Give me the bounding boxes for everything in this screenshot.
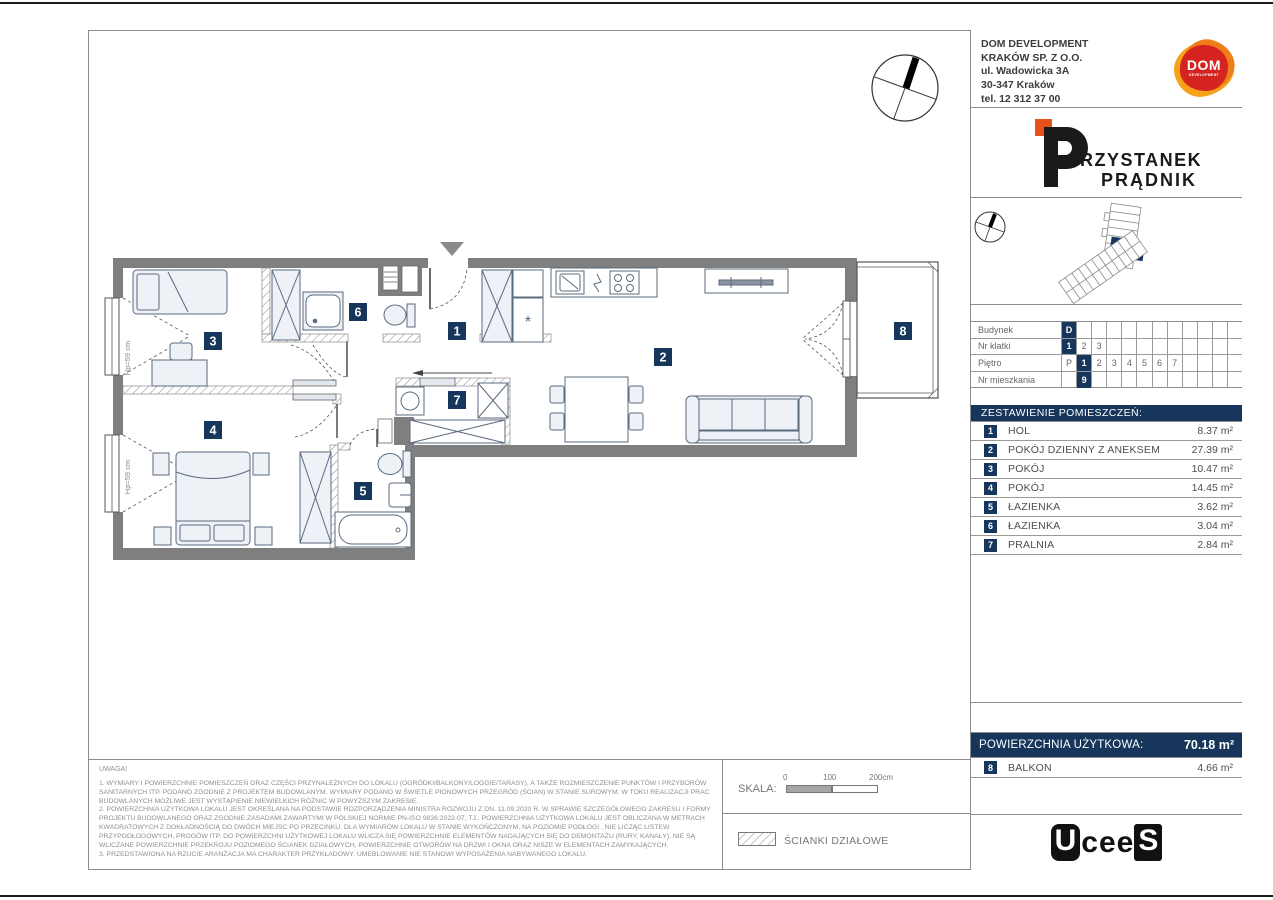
- location-cell: [1182, 322, 1197, 338]
- location-cell: [1076, 322, 1091, 338]
- location-cell: [1106, 322, 1121, 338]
- location-cell: 9: [1076, 372, 1091, 389]
- location-cell: 1: [1076, 355, 1091, 371]
- room-row-7: 7 PRALNIA 2.84 m²: [971, 536, 1242, 555]
- partition-legend-label: ŚCIANKI DZIAŁOWE: [784, 835, 889, 847]
- location-row-label: Nr klatki: [971, 339, 1061, 355]
- title-block: DOM DEVELOPMENT KRAKÓW SP. Z O.O. ul. Wa…: [970, 30, 1242, 870]
- page-top-rule: [0, 2, 1273, 4]
- company-phone: tel. 12 312 37 00: [981, 93, 1088, 107]
- notes-box: UWAGA! 1. WYMIARY I POWIERZCHNIE POMIESZ…: [88, 759, 723, 870]
- location-cell: P: [1061, 355, 1076, 371]
- title-block-empty2: [971, 778, 1242, 815]
- location-cell: [1152, 339, 1167, 355]
- location-cell: [1197, 372, 1212, 389]
- location-cell: D: [1061, 322, 1076, 338]
- location-row-label: Nr mieszkania: [971, 372, 1061, 389]
- location-table: Budynek D Nr klatki 1 2 3: [971, 322, 1242, 388]
- room-row-3: 3 POKÓJ 10.47 m²: [971, 460, 1242, 479]
- logo-word: DOM: [1172, 57, 1236, 73]
- room-name: POKÓJ: [1008, 482, 1045, 494]
- title-block-spacer: [971, 305, 1242, 322]
- ucees-letter-e: e: [1099, 828, 1116, 858]
- location-row-label: Piętro: [971, 355, 1061, 371]
- project-name-line2: PRĄDNIK: [1101, 170, 1197, 190]
- location-cell: [1182, 355, 1197, 371]
- location-cell: [1121, 339, 1136, 355]
- location-cell: [1106, 372, 1121, 389]
- room-area: 10.47 m²: [1192, 463, 1242, 475]
- location-cell: [1136, 322, 1151, 338]
- notes-title: UWAGA!: [99, 766, 712, 773]
- scale-label: SKALA:: [738, 783, 777, 795]
- room-area: 2.84 m²: [1197, 539, 1242, 551]
- scale-tick-0: 0: [783, 773, 787, 782]
- location-cell: [1212, 355, 1227, 371]
- room-name: HOL: [1008, 425, 1030, 437]
- note-item-2: 2. POWIERZCHNIA UŻYTKOWA LOKALU JEST OKR…: [99, 806, 712, 850]
- room-area: 4.66 m²: [1197, 762, 1242, 774]
- przystanek-pradnik-logo: RZYSTANEK PRĄDNIK: [1023, 111, 1223, 195]
- ucees-letter-u: U: [1051, 824, 1081, 861]
- location-cell: [1167, 322, 1182, 338]
- site-plan-section: [971, 198, 1242, 305]
- location-cell: [1121, 322, 1136, 338]
- usable-area-value: 70.18 m²: [1184, 738, 1242, 752]
- location-cell: [1212, 372, 1227, 389]
- company-name-line2: KRAKÓW SP. Z O.O.: [981, 52, 1088, 66]
- location-cell: [1136, 339, 1151, 355]
- project-name-line1: RZYSTANEK: [1080, 150, 1202, 170]
- room-row-4: 4 POKÓJ 14.45 m²: [971, 479, 1242, 498]
- note-item-3: 3. PRZEDSTAWIONA NA RZUCIE ARANŻACJA MA …: [99, 851, 712, 860]
- location-cell: 2: [1091, 355, 1106, 371]
- location-cell: 5: [1136, 355, 1151, 371]
- rooms-table-header: ZESTAWIENIE POMIESZCZEŃ:: [971, 405, 1242, 422]
- location-cell: 3: [1106, 355, 1121, 371]
- room-number-badge: 6: [984, 520, 997, 533]
- scale-row: SKALA: 0 100 200cm: [723, 760, 970, 814]
- location-cell: [1227, 339, 1242, 355]
- room-name: POKÓJ: [1008, 463, 1045, 475]
- room-number-badge: 7: [984, 539, 997, 552]
- partition-hatch-swatch: [738, 832, 776, 846]
- note-item-1: 1. WYMIARY I POWIERZCHNIE POMIESZCZEŃ OR…: [99, 780, 712, 806]
- location-cell: [1091, 372, 1106, 389]
- title-block-empty-row: [971, 703, 1242, 733]
- room-number-badge: 5: [984, 501, 997, 514]
- room-area: 27.39 m²: [1192, 444, 1242, 456]
- location-cell: [1197, 339, 1212, 355]
- scale-bar-light-segment: [832, 785, 878, 793]
- scale-tick-100: 100: [823, 773, 836, 782]
- room-row-5: 5 ŁAZIENKA 3.62 m²: [971, 498, 1242, 517]
- location-row-pietro: Piętro P 1 2 3 4 5 6 7: [971, 355, 1242, 372]
- location-cell: [1227, 355, 1242, 371]
- company-street: ul. Wadowicka 3A: [981, 65, 1088, 79]
- location-cell: 6: [1152, 355, 1167, 371]
- logo-subword: DEVELOPMENT: [1172, 73, 1236, 77]
- room-number-badge: 4: [984, 482, 997, 495]
- ucees-letter-s: S: [1134, 824, 1162, 861]
- location-cell: [1136, 372, 1151, 389]
- usable-area-bar: POWIERZCHNIA UŻYTKOWA: 70.18 m²: [971, 733, 1242, 758]
- location-cell: [1167, 339, 1182, 355]
- location-row-budynek: Budynek D: [971, 322, 1242, 339]
- room-area: 3.62 m²: [1197, 501, 1242, 513]
- location-cell: [1212, 322, 1227, 338]
- room-row-1: 1 HOL 8.37 m²: [971, 422, 1242, 441]
- location-cell: [1197, 355, 1212, 371]
- location-cell: 1: [1061, 339, 1076, 355]
- location-cell: 2: [1076, 339, 1091, 355]
- usable-area-label: POWIERZCHNIA UŻYTKOWA:: [979, 739, 1143, 751]
- location-cell: [1212, 339, 1227, 355]
- room-area: 8.37 m²: [1197, 425, 1242, 437]
- location-cell: [1121, 372, 1136, 389]
- location-cell: [1197, 322, 1212, 338]
- project-logo-section: RZYSTANEK PRĄDNIK: [971, 108, 1242, 198]
- location-row-klatka: Nr klatki 1 2 3: [971, 339, 1242, 356]
- dom-development-logo: DOM DEVELOPMENT: [1172, 40, 1236, 98]
- location-cell: [1182, 339, 1197, 355]
- location-cell: [1061, 372, 1076, 389]
- room-number-badge: 8: [984, 761, 997, 774]
- location-cell: [1106, 339, 1121, 355]
- room-name: ŁAZIENKA: [1008, 520, 1060, 532]
- ucees-letter-e: e: [1117, 828, 1134, 858]
- location-cell: [1227, 322, 1242, 338]
- location-cell: [1227, 372, 1242, 389]
- title-block-gap: [971, 388, 1242, 405]
- page-bottom-rule: [0, 895, 1273, 897]
- room-row-6: 6 ŁAZIENKA 3.04 m²: [971, 517, 1242, 536]
- location-cell: [1167, 372, 1182, 389]
- room-name: BALKON: [1008, 762, 1052, 774]
- room-area: 14.45 m²: [1192, 482, 1242, 494]
- room-number-badge: 3: [984, 463, 997, 476]
- location-cell: [1152, 372, 1167, 389]
- location-row-label: Budynek: [971, 322, 1061, 338]
- company-address: DOM DEVELOPMENT KRAKÓW SP. Z O.O. ul. Wa…: [981, 38, 1088, 106]
- room-row-2: 2 POKÓJ DZIENNY Z ANEKSEM 27.39 m²: [971, 441, 1242, 460]
- room-name: PRALNIA: [1008, 539, 1054, 551]
- ucees-logo: U c e e S: [971, 815, 1242, 870]
- title-block-empty: [971, 555, 1242, 703]
- room-name: ŁAZIENKA: [1008, 501, 1060, 513]
- legend-row: ŚCIANKI DZIAŁOWE: [723, 814, 970, 871]
- scale-tick-200: 200cm: [869, 773, 893, 782]
- scale-legend-box: SKALA: 0 100 200cm ŚCIANKI DZIAŁOWE: [723, 759, 970, 870]
- company-name-line1: DOM DEVELOPMENT: [981, 38, 1088, 52]
- room-area: 3.04 m²: [1197, 520, 1242, 532]
- location-cell: 7: [1167, 355, 1182, 371]
- room-name: POKÓJ DZIENNY Z ANEKSEM: [1008, 444, 1160, 456]
- location-cell: 4: [1121, 355, 1136, 371]
- location-cell: [1182, 372, 1197, 389]
- location-cell: 3: [1091, 339, 1106, 355]
- company-section: DOM DEVELOPMENT KRAKÓW SP. Z O.O. ul. Wa…: [971, 30, 1242, 108]
- location-cell: [1091, 322, 1106, 338]
- balcony-row: 8 BALKON 4.66 m²: [971, 758, 1242, 778]
- location-row-mieszkanie: Nr mieszkania 9: [971, 372, 1242, 389]
- scale-bar-dark-segment: [786, 785, 832, 793]
- room-number-badge: 1: [984, 425, 997, 438]
- room-number-badge: 2: [984, 444, 997, 457]
- company-city: 30-347 Kraków: [981, 79, 1088, 93]
- ucees-letter-c: c: [1081, 828, 1098, 858]
- location-cell: [1152, 322, 1167, 338]
